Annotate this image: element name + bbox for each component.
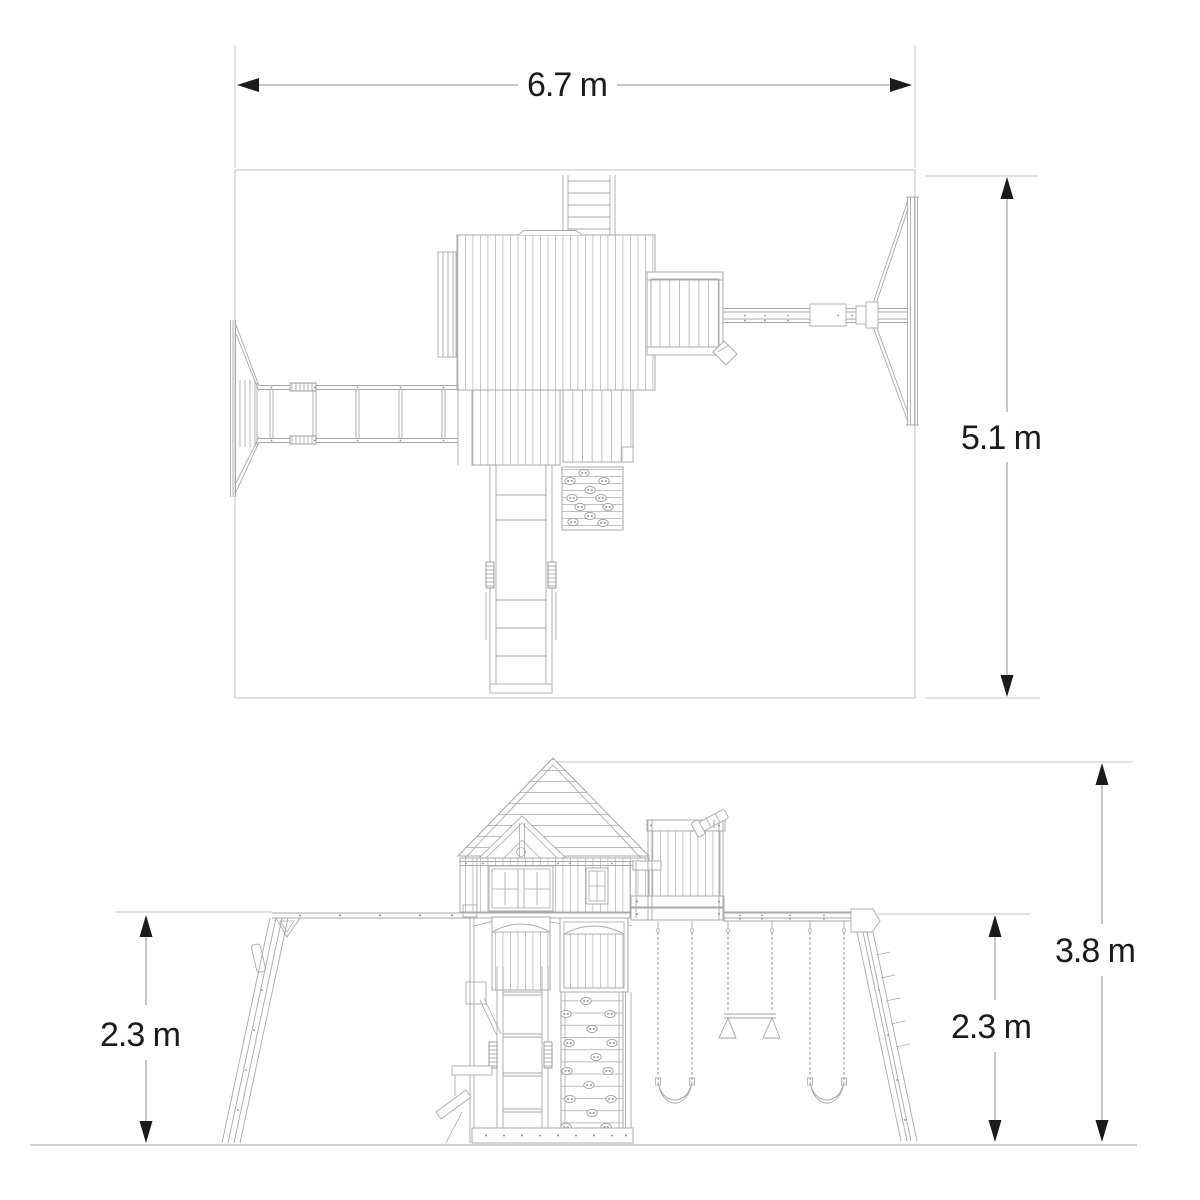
dim-label-depth: 5.1 m — [961, 419, 1041, 457]
trapeze-bar — [719, 1014, 780, 1038]
elev-ladder — [480, 966, 552, 1141]
elev-right-a-frame — [857, 932, 917, 1141]
swing-seat-right — [808, 1078, 847, 1103]
plan-view — [231, 170, 920, 698]
elev-left-a-frame — [222, 918, 300, 1143]
arrow-hoverall-up — [1096, 763, 1109, 785]
arrow-depth-down — [1001, 675, 1014, 697]
plan-left-panel — [438, 252, 456, 357]
elev-house-wall — [460, 858, 649, 926]
playset-dimension-diagram: 6.7 m 5.1 m 2.3 m 2.3 m 3.8 m — [0, 0, 1200, 1200]
plan-rock-wall — [562, 467, 623, 530]
elevation-view — [30, 758, 1137, 1145]
plan-right-a-frame — [866, 197, 919, 425]
dim-label-width: 6.7 m — [527, 66, 607, 104]
arrow-hleft-down — [140, 1121, 153, 1143]
arrow-hright-down — [989, 1120, 1002, 1142]
elev-rock-wall — [561, 992, 623, 1138]
plan-main-deck — [457, 231, 655, 391]
elev-small-window — [586, 868, 608, 904]
dim-label-height-left: 2.3 m — [100, 1016, 180, 1054]
arrow-hleft-up — [140, 915, 153, 937]
plan-upper-deck — [647, 272, 737, 365]
elev-lower-walls — [466, 917, 628, 1004]
plan-entry-ladder — [563, 175, 615, 236]
elev-big-window — [489, 866, 553, 911]
elev-roof — [458, 758, 649, 858]
plan-swing-beam — [723, 304, 908, 326]
arrow-hright-up — [989, 915, 1002, 937]
arrow-width-left — [237, 78, 259, 92]
diagram-canvas: 6.7 m 5.1 m 2.3 m 2.3 m 3.8 m — [0, 0, 1200, 1200]
plan-monkey-bars — [257, 383, 458, 465]
arrow-depth-up — [1001, 177, 1014, 199]
plan-slide — [486, 465, 556, 693]
plan-lower-deck — [472, 390, 633, 465]
arrow-hoverall-down — [1096, 1120, 1109, 1142]
elev-swings — [656, 932, 847, 1103]
elev-upper-deck — [630, 806, 730, 920]
arrow-width-right — [890, 78, 912, 92]
dim-label-height-overall: 3.8 m — [1055, 932, 1135, 970]
dim-label-height-right: 2.3 m — [951, 1008, 1031, 1046]
swing-seat-left — [656, 1078, 695, 1103]
